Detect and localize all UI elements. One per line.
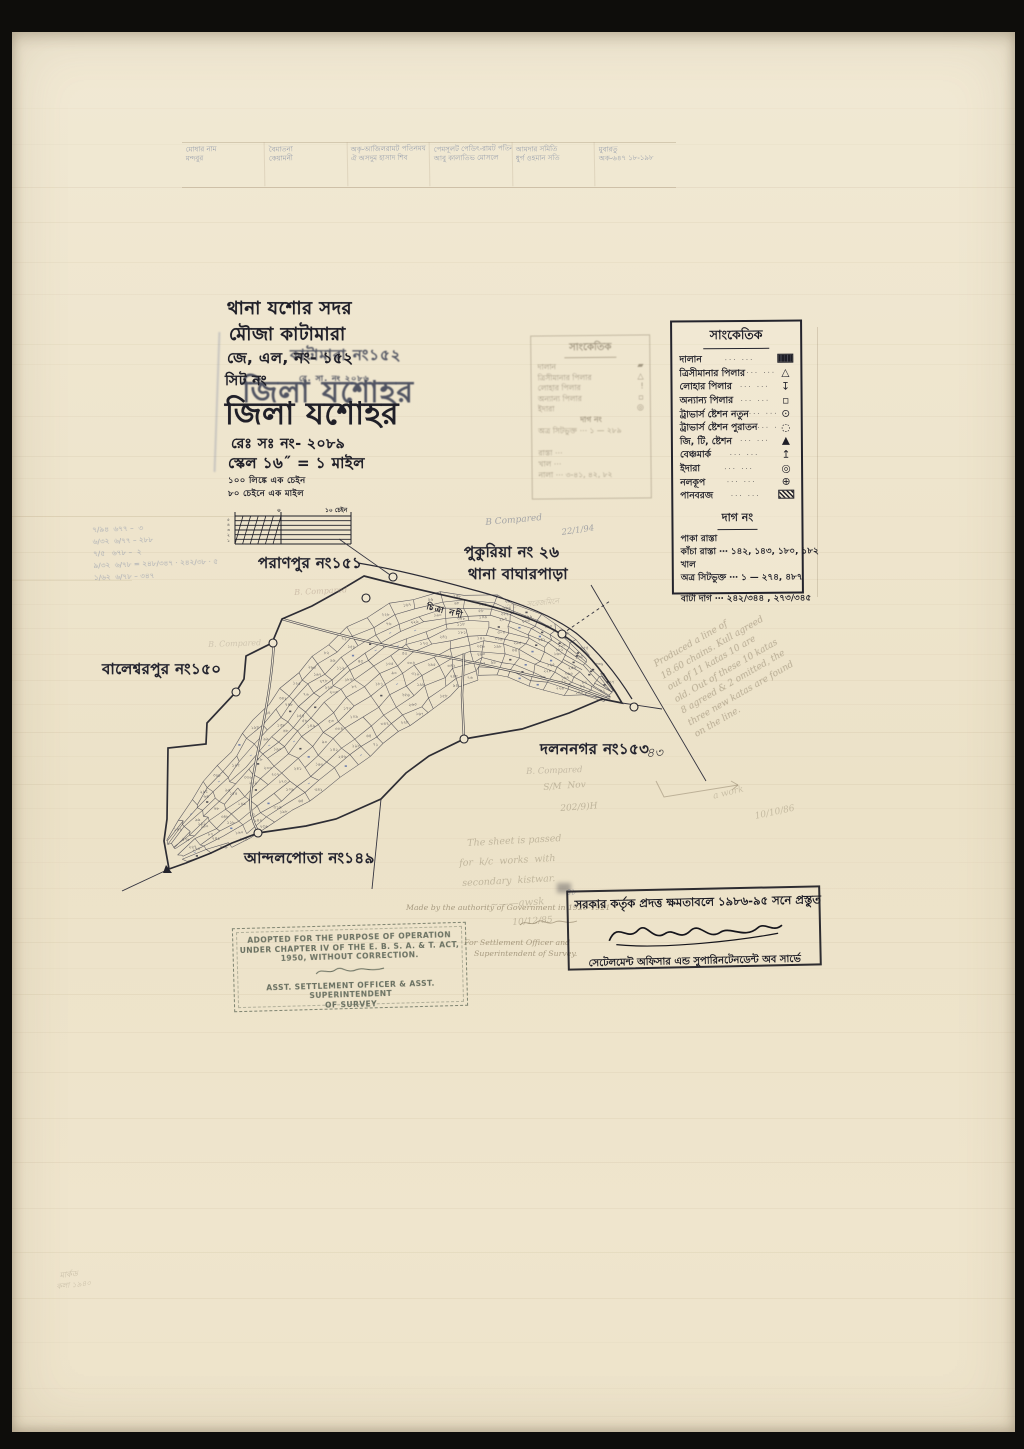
neighbor-mouza-label: থানা বাঘারপাড়া [468, 563, 568, 588]
texture-line [12, 994, 1015, 995]
svg-text:৯৯: ৯৯ [580, 683, 586, 689]
svg-text:৫৮: ৫৮ [478, 608, 484, 613]
svg-text:২৪১: ২৪১ [537, 637, 546, 642]
neighbor-mouza-label: আন্দলপোতা নং১৪৯ [244, 847, 375, 872]
bullseye-icon: ◎ [778, 463, 794, 473]
bengali-preparation-stamp: সরকার কর্তৃক প্রদত্ত ক্ষমতাবলে ১৯৮৬-৯৫ স… [566, 885, 822, 970]
svg-text:১৮৬: ১৮৬ [344, 676, 353, 682]
svg-text:১৪৯: ১৪৯ [307, 723, 316, 729]
triangle-icon: △ [777, 368, 793, 378]
svg-text:৩১৯: ৩১৯ [411, 671, 420, 676]
svg-text:২৪১: ২৪১ [294, 766, 303, 771]
svg-text:৩৪২: ৩৪২ [380, 721, 389, 727]
traverse-station-circle [232, 688, 240, 696]
legend-row: নলকূপ··· ···⊕ [680, 475, 794, 489]
legend-row: জি, টি, ষ্টেশন··· ···▲ [680, 434, 794, 448]
legend-rows: দালান··· ···ত্রিসীমানার পিলার··· ···△লোহ… [679, 353, 794, 503]
header-note-text: কেয়ামনী [268, 153, 343, 163]
ghost-legend-symbol: ! [632, 381, 644, 392]
texture-line [12, 1032, 1015, 1033]
svg-text:৯৯: ৯৯ [490, 659, 496, 664]
svg-text:১৪৯: ১৪৯ [238, 801, 246, 806]
svg-text:৬৮: ৬৮ [454, 600, 460, 605]
svg-text:১৩৫: ১৩৫ [385, 661, 393, 666]
svg-text:৭৬: ৭৬ [386, 621, 392, 626]
ghost-legend-symbol: ▫ [632, 392, 644, 403]
svg-text:১৯০: ১৯০ [200, 823, 209, 828]
plot-numbers: ১৪২২৭৮২০৭১৭৩৯৯১১২১৯০৮৭২৪১৩০৮২৯৫৬৪৬৮৩৪৮১১… [174, 593, 615, 851]
pencil-note: B Compared [485, 513, 542, 528]
svg-text:৯৯: ৯৯ [428, 597, 434, 602]
texture-line [12, 1388, 1015, 1389]
svg-text:২৫৬: ২৫৬ [568, 665, 577, 671]
ghost-legend-label: ইদারা [538, 403, 632, 414]
svg-text:৯৪: ৯৪ [453, 683, 459, 688]
svg-text:১৭৩: ১৭৩ [278, 779, 287, 784]
svg-text:১৬০: ১৬০ [315, 761, 324, 767]
texture-line [12, 516, 252, 517]
traverse-station-circle [630, 703, 638, 711]
svg-text:৭৬: ৭৬ [467, 675, 473, 680]
neighbor-mouza-label: পরাণপুর নং১৫১ [258, 552, 362, 577]
traverse-station-circle [389, 573, 397, 581]
ink-smudge [557, 883, 571, 893]
legend-row: লোহার পিলার··· ···↧ [679, 380, 793, 394]
stamp-en-signature [310, 962, 390, 977]
svg-text:৯৯: ৯৯ [263, 736, 269, 741]
header-note-text: ঐ অসদুম হাসাদ শিব [351, 153, 426, 163]
legend-row: পানবরজ··· ··· [680, 489, 794, 503]
header-note-text: অক-৬৪৭ ১৮-১৯৮ [598, 153, 673, 163]
texture-line [12, 416, 1015, 417]
svg-text:১৭৩: ১৭৩ [192, 846, 201, 852]
svg-text:২২৯: ২২৯ [556, 685, 565, 690]
svg-text:১৯০: ১৯০ [273, 746, 281, 751]
texture-line [12, 1416, 1015, 1417]
pencil-note: B. Compared [526, 765, 583, 777]
legend-leader-dots: ··· ··· [745, 369, 777, 377]
ghost-legend-box: সাংকেতিক দালান▰ত্রিসীমানার পিলার△লোহার প… [530, 334, 652, 499]
ghost-legend-symbol: ◎ [632, 402, 644, 413]
svg-text:২৭৮: ২৭৮ [319, 678, 328, 684]
svg-text:৩৩৬: ৩৩৬ [244, 775, 253, 780]
header-note-text: ধুর্গ ওহমান সতি [516, 153, 591, 163]
svg-text:১৫৮: ১৫৮ [347, 644, 356, 650]
stamp-bn-bottom-line: সেটেলমেন্ট অফিসার এন্ড সুপারিনটেনডেন্ট অ… [576, 952, 814, 974]
header-note-cell: বৈমাতনাকেয়ামনী [264, 142, 347, 187]
svg-text:৩০৪: ৩০৪ [335, 726, 344, 731]
ghost-legend-symbol: △ [632, 371, 644, 382]
traverse-station-circle [558, 630, 566, 638]
svg-text:৮৭: ৮৭ [351, 684, 357, 689]
svg-text:৩০৪: ৩০৪ [407, 660, 416, 665]
svg-text:৬৮: ৬৮ [214, 806, 220, 811]
svg-text:২২৮: ২২৮ [400, 720, 409, 725]
svg-text:৯০: ৯০ [391, 670, 397, 675]
circle-dot-icon: ⊙ [778, 409, 794, 419]
header-note-cell: আমদার সমিতিধুর্গ ওহমান সতি [512, 142, 595, 187]
svg-text:২০৩: ২০৩ [264, 765, 273, 770]
svg-text:২২৯: ২২৯ [410, 619, 419, 625]
svg-text:১৫৪: ১৫৪ [229, 790, 238, 796]
header-note-cell: মুবারতুঅক-৬৪৭ ১৮-১৯৮ [594, 142, 676, 187]
svg-text:১৫৮: ১৫৮ [439, 693, 448, 698]
svg-text:২০৭: ২০৭ [271, 772, 280, 777]
svg-text:৫৩: ৫৩ [328, 718, 334, 724]
texture-line [12, 456, 1015, 457]
texture-line [12, 222, 1015, 223]
neighbor-mouza-label: বালেশ্বরপুর নং১৫০ [102, 658, 221, 683]
svg-text:১৯৮: ১৯৮ [251, 724, 260, 730]
paper-crease-line [817, 327, 818, 597]
texture-line [12, 478, 1015, 479]
legend-leader-dots: ··· ··· [733, 396, 778, 404]
svg-text:১৭৩: ১৭৩ [420, 641, 429, 646]
svg-text:৫৩: ৫৩ [402, 651, 408, 656]
svg-text:৪৫: ৪৫ [358, 659, 364, 664]
legend-leader-dots: ··· ··· [732, 383, 778, 391]
texture-line [12, 364, 1015, 365]
svg-text:২৫৬: ২৫৬ [260, 824, 269, 829]
texture-line [12, 1208, 1015, 1209]
pencil-arrow [652, 767, 772, 807]
svg-text:২৯৫: ২৯৫ [513, 640, 522, 645]
texture-line [12, 294, 1015, 295]
svg-text:১২৫: ১২৫ [547, 662, 555, 667]
svg-text:১৯৮: ১৯৮ [279, 809, 288, 815]
svg-text:২৬৩: ২৬৩ [408, 702, 417, 708]
svg-text:১২৫: ১২৫ [232, 762, 241, 767]
header-note-text: আবু কালাতিভ মোসলে [433, 153, 508, 163]
map-sheet-paper: মোষার নামমন্দবুরবৈমাতনাকেয়ামনীঅকৃ-আজিলর… [12, 32, 1015, 1432]
svg-text:৬৪: ৬৪ [203, 794, 209, 799]
legend-row: বেঞ্চমার্ক··· ···↥ [680, 448, 794, 462]
svg-text:৯০: ৯০ [322, 739, 328, 744]
texture-line [12, 262, 1015, 263]
legend-row: দালান··· ··· [679, 353, 793, 367]
cadastral-map: ১৪২২৭৮২০৭১৭৩৯৯১১২১৯০৮৭২৪১৩০৮২৯৫৬৪৬৮৩৪৮১১… [114, 551, 714, 911]
plot-number-row: পাকা রাস্তা [681, 532, 795, 546]
svg-text:১৬৭: ১৬৭ [416, 711, 425, 717]
svg-text:২৪৮: ২৪৮ [285, 702, 294, 707]
scale-note-1: ১০০ লিঙ্কে এক চেইন [228, 474, 306, 488]
texture-line [12, 968, 1015, 969]
svg-text:৬৪: ৬৪ [298, 798, 304, 803]
svg-text:১৪২: ১৪২ [477, 635, 486, 641]
legend-leader-dots: ··· ··· [711, 451, 778, 459]
svg-text:৩৪২: ৩৪২ [314, 787, 322, 792]
svg-text:১৪৯: ১৪৯ [479, 614, 488, 619]
svg-text:২৯৫: ২৯৫ [427, 662, 436, 667]
svg-text:২২৮: ২২৮ [543, 668, 552, 673]
circle-plus-icon: ⊕ [778, 477, 794, 487]
svg-text:১২৫: ১২৫ [292, 680, 301, 686]
svg-text:২৪১: ২৪১ [439, 634, 448, 639]
svg-text:১১৮: ১১৮ [457, 621, 466, 626]
svg-text:১০৯: ১০৯ [350, 714, 359, 720]
texture-line [12, 1342, 1015, 1343]
hatched-rect-icon [778, 490, 794, 501]
handwritten-header-table: মোষার নামমন্দবুরবৈমাতনাকেয়ামনীঅকৃ-আজিলর… [182, 142, 676, 188]
ghost-legend-title: সাংকেতিক [564, 340, 616, 359]
circle-dashed-icon: ◌ [778, 422, 794, 432]
svg-text:২৪৮: ২৪৮ [450, 673, 459, 678]
ghost-legend-extra-row: নালা ⋯ ৩-৪১, ৪২, ৮২ [539, 468, 645, 480]
svg-text:৩৪৮: ৩৪৮ [221, 814, 230, 819]
svg-text:২৫৬: ২৫৬ [476, 643, 485, 649]
svg-text:৩০৪: ৩০৪ [497, 630, 505, 635]
legend-row: ট্রাভার্স ষ্টেশন নতুন··· ···⊙ [680, 407, 794, 421]
square-icon: ▫ [778, 395, 794, 405]
svg-text:২৭৮: ২৭৮ [182, 836, 191, 842]
svg-text:১৮১: ১৮১ [458, 630, 466, 635]
legend-row: ইদারা··· ···◎ [680, 461, 794, 475]
svg-text:৩৪২: ৩৪২ [279, 696, 288, 702]
svg-text:৮২: ৮২ [324, 650, 330, 655]
svg-text:৭৬: ৭৬ [303, 692, 309, 697]
pencil-note: কলা ১৯৪০ [56, 1278, 92, 1294]
building-symbol [777, 354, 793, 363]
legend-item-label: পানবরজ [680, 488, 713, 503]
svg-text:৭১: ৭১ [600, 688, 606, 693]
svg-text:১৪২: ১৪২ [174, 827, 182, 832]
svg-text:২৬৩: ২৬৩ [308, 664, 317, 670]
header-note-cell: অকৃ-আজিলরামট পতিনমযঐ অসদুম হাসাদ শিব [347, 142, 430, 187]
svg-text:৩৪২: ৩৪২ [447, 663, 456, 669]
svg-text:৬৪: ৬৪ [366, 733, 372, 738]
svg-text:১৯৮: ১৯৮ [417, 682, 426, 687]
legend-row: অন্যান্য পিলার··· ···▫ [680, 393, 794, 407]
legend-leader-dots: ··· ··· [713, 491, 778, 499]
svg-text:৩১৯: ৩১৯ [495, 636, 504, 642]
svg-text:২৫৬: ২৫৬ [402, 692, 411, 698]
legend-leader-dots: ··· ··· [749, 410, 778, 418]
neighbor-mouza-label: দলননগর নং১৫৩ [540, 738, 649, 763]
legend-leader-dots: ··· ··· [702, 356, 778, 365]
svg-text:১৯৮: ১৯৮ [494, 644, 502, 649]
header-note-cell: পেমসূলট পেডিৎ-রামট পতিনমরআবু কালাতিভ মোস… [429, 142, 512, 187]
traverse-station-circle [460, 735, 468, 743]
svg-text:১৯৮: ১৯৮ [352, 743, 361, 748]
texture-line [12, 1072, 1015, 1073]
triangle-filled-icon: ▲ [778, 436, 794, 446]
header-note-cell: মোষার নামমন্দবুর [182, 142, 265, 187]
texture-line [12, 1118, 1015, 1119]
ghost-margin-line [214, 332, 221, 472]
svg-text:২০৩: ২০৩ [329, 689, 337, 694]
texture-line [12, 108, 1015, 109]
svg-text:১৬০: ১৬০ [554, 651, 562, 656]
iron-pillar-icon: ↧ [777, 382, 793, 392]
svg-text:১০ চেইন: ১০ চেইন [325, 506, 348, 514]
ghost-legend-row: ইদারা◎ [538, 402, 644, 414]
svg-text:১৬০: ১৬০ [235, 830, 244, 836]
svg-text:২৮৭: ২৮৭ [499, 616, 508, 622]
legend-row: ট্রাভার্স ষ্টেশন পুরাতন··· ···◌ [680, 421, 794, 435]
svg-text:৩০৮: ৩০৮ [213, 773, 222, 779]
svg-text:২২৮: ২২৮ [381, 612, 390, 617]
pencil-note: 22/1/94 [561, 523, 595, 537]
ghost-reg-no: রে. সা. নং ২০৮৬ [299, 373, 370, 386]
texture-line [12, 344, 1015, 345]
svg-text:৬৮: ৬৮ [283, 728, 289, 733]
legend-leader-dots: ··· ··· [705, 478, 778, 487]
svg-text:১৭৩: ১৭৩ [343, 706, 352, 711]
svg-text:১১২: ১১২ [336, 665, 345, 670]
svg-text:৬৪: ৬৪ [512, 647, 518, 652]
legend-row: ত্রিসীমানার পিলার··· ···△ [679, 366, 793, 380]
scanned-cadastral-map-page: { "colors":{"ink":"#1f1f28","paper":"#ef… [0, 0, 1024, 1449]
pencil-note: B. Compared [208, 638, 261, 649]
print-note-superintendent: Superintendent of Survey. [474, 949, 577, 958]
svg-text:০: ০ [277, 507, 281, 514]
svg-text:৯৯: ৯৯ [330, 658, 336, 663]
svg-text:১৪২: ১৪২ [254, 817, 263, 823]
pencil-note: ৪৩ [646, 744, 663, 765]
texture-line [12, 1162, 1015, 1163]
stamp-bn-signature [594, 911, 795, 951]
svg-text:১৫৮: ১৫৮ [277, 723, 286, 728]
svg-text:১৬৭: ১৬৭ [313, 672, 322, 678]
svg-text:১৮১: ১৮১ [375, 681, 384, 686]
svg-text:২৪১: ২৪১ [212, 836, 221, 842]
svg-text:১০৯: ১০৯ [286, 787, 295, 792]
texture-line [12, 1252, 1015, 1253]
legend-leader-dots: ··· ··· [757, 423, 777, 431]
english-adoption-stamp: ADOPTED FOR THE PURPOSE OF OPERATION UND… [232, 922, 468, 1013]
building-icon [777, 354, 793, 365]
legend-leader-dots: ··· ··· [732, 437, 778, 445]
svg-text:১১৮: ১১৮ [227, 820, 236, 825]
plot-number-section-title: দাগ নং [717, 508, 757, 529]
legend-leader-dots: ··· ··· [700, 464, 778, 473]
ghost-legend-symbol: ▰ [631, 360, 643, 371]
traverse-station-circle [362, 594, 370, 602]
texture-line [12, 1298, 1015, 1299]
svg-text:৭১: ৭১ [373, 742, 379, 747]
margin-calculation-notes: ৭/৯৪ ৬৭৭ – ৩৬/৩২ ৬/৭৭ – ২৮৮৭/৫ ৬৭৮ – ২৯/… [92, 519, 244, 584]
svg-text:২৬৩: ২৬৩ [477, 651, 486, 657]
legend-title: সাংকেতিক [703, 327, 769, 349]
svg-text:২৫৬: ২৫৬ [338, 754, 347, 759]
hatched-rect-symbol [778, 490, 794, 499]
traverse-station-circle [254, 829, 262, 837]
header-note-text: মন্দবুর [186, 153, 261, 163]
benchmark-icon: ↥ [778, 450, 794, 460]
print-note-officer: For Settlement Officer and [464, 938, 570, 947]
svg-text:১৬৭: ১৬৭ [403, 602, 412, 608]
svg-text:১৪২: ১৪২ [330, 747, 338, 752]
traverse-station-circle [269, 639, 277, 647]
